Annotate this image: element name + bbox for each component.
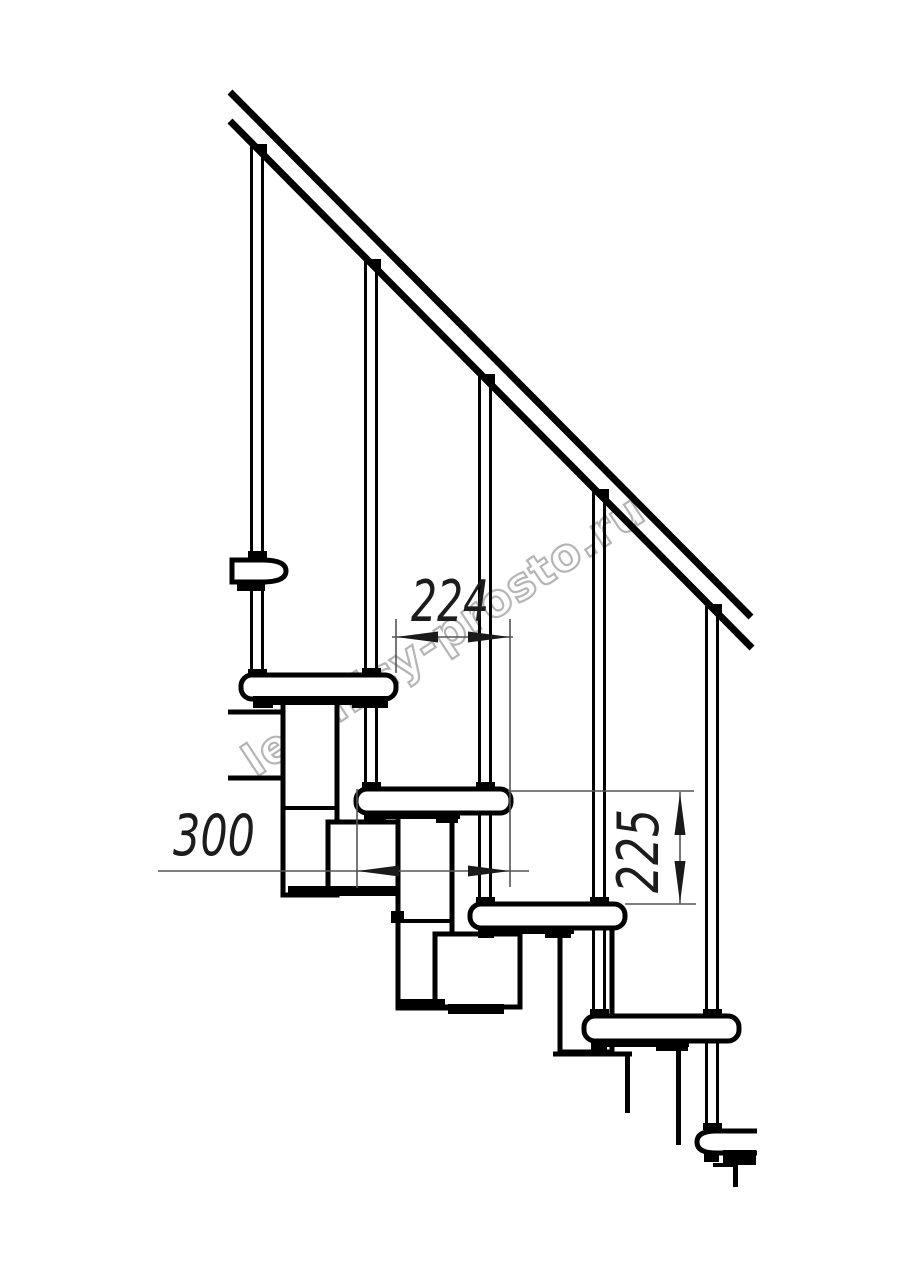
tread-5 [584, 1016, 739, 1041]
dim-text-run: 224 [411, 569, 489, 635]
tread-1-end-view [232, 560, 286, 582]
module-box-under-step3 [328, 822, 403, 890]
baluster-1 [252, 146, 263, 676]
tread-2 [241, 675, 396, 699]
tread-3 [356, 789, 511, 813]
dim-text-length: 300 [173, 803, 255, 869]
module-box-under-step4 [435, 934, 520, 1007]
staircase-drawing: lestnicy-prosto.ru [0, 0, 914, 1280]
dim-text-rise: 225 [606, 809, 672, 893]
tread-6-end-view [697, 1131, 757, 1153]
baluster-5 [707, 606, 718, 1128]
drawing-page: lestnicy-prosto.ru [0, 0, 914, 1280]
tread-4 [470, 904, 625, 928]
module-connector-block [391, 911, 404, 923]
